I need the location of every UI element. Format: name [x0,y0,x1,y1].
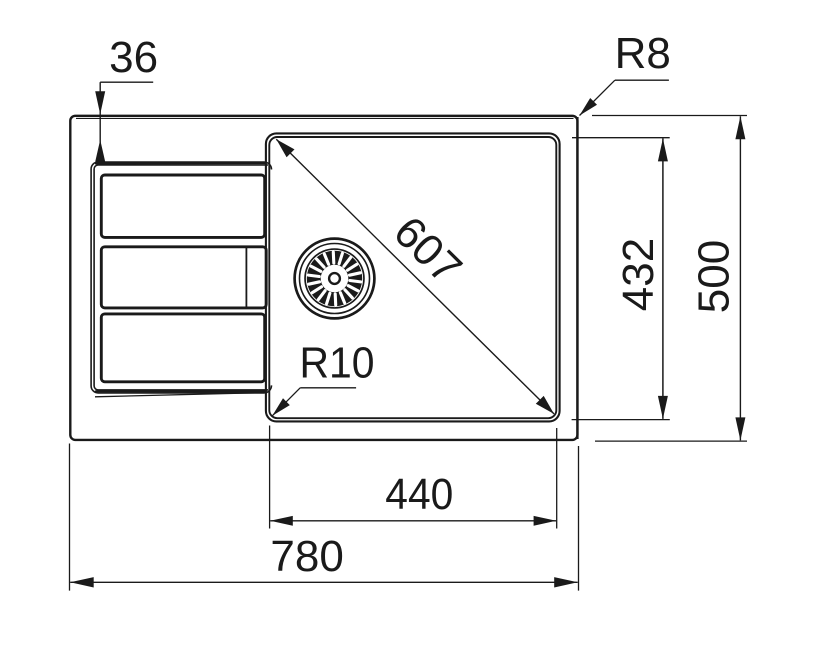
svg-text:R10: R10 [300,339,375,388]
svg-text:432: 432 [614,238,663,311]
svg-text:780: 780 [270,532,343,581]
svg-text:R8: R8 [615,29,671,78]
svg-text:440: 440 [385,470,453,519]
svg-text:500: 500 [689,240,738,313]
svg-text:36: 36 [109,33,158,82]
